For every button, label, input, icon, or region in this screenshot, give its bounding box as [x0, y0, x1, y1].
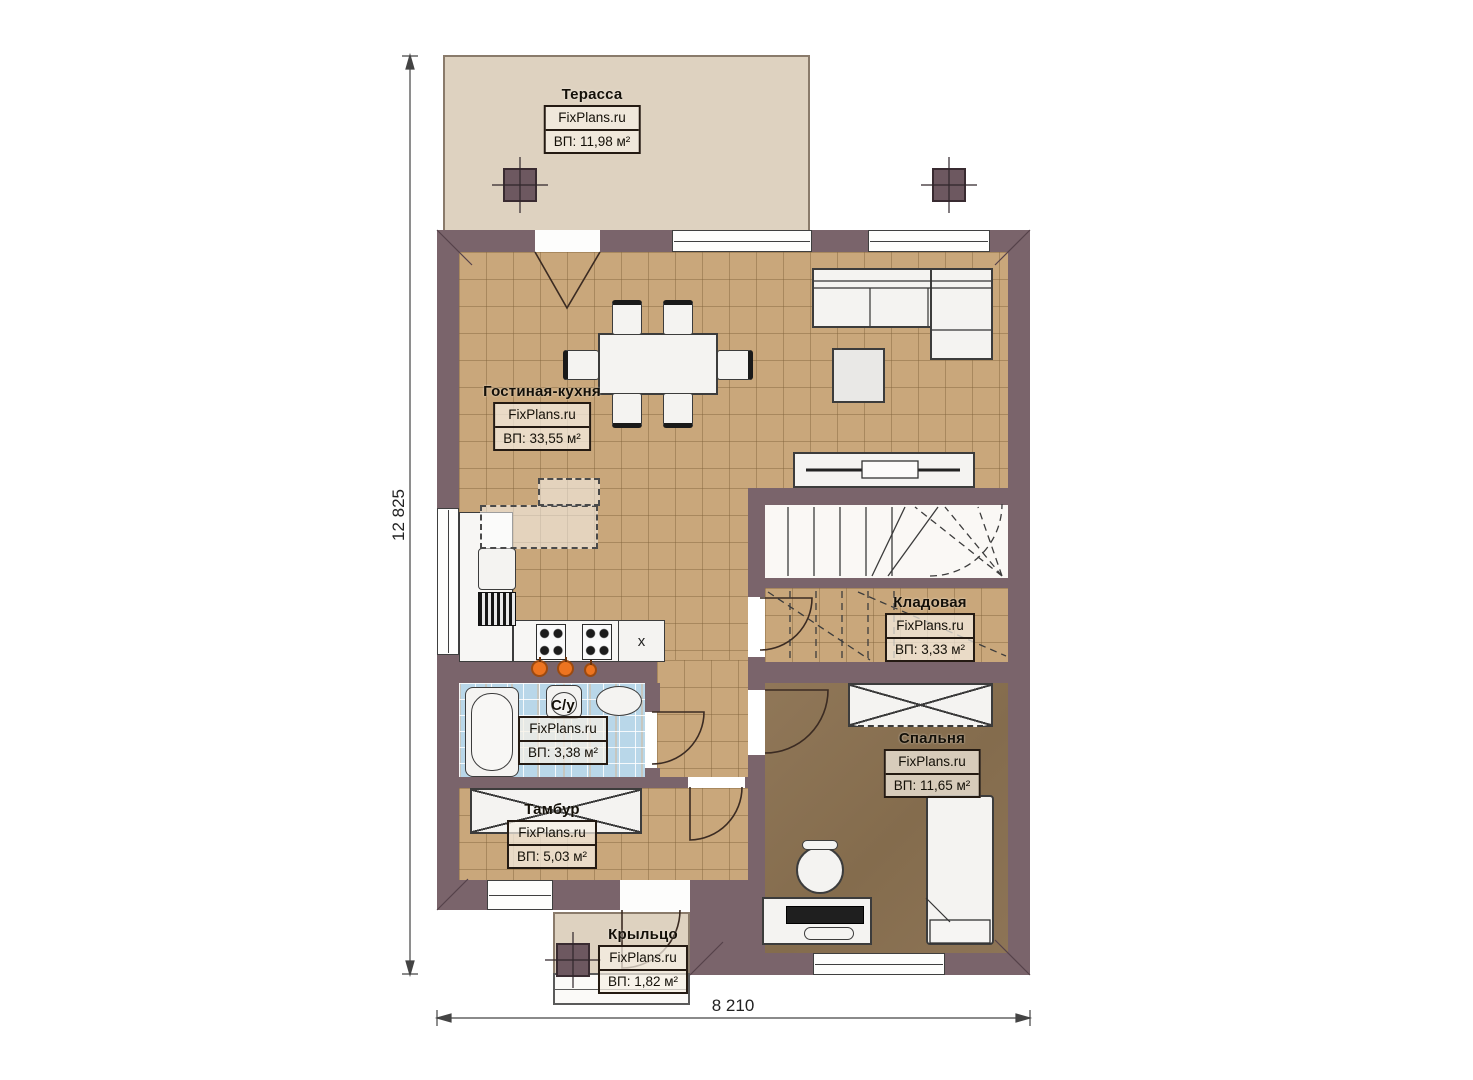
room-label-bedroom: Спальня FixPlans.ru ВП: 11,65 м² — [884, 730, 981, 798]
sink-drainer — [478, 592, 516, 626]
column-marker-icon — [503, 168, 537, 202]
watermark: FixPlans.ru — [509, 822, 595, 844]
stove-burners — [582, 624, 612, 660]
dimension-vertical: 12 825 — [389, 489, 409, 541]
dimension-horizontal: 8 210 — [712, 996, 755, 1016]
chair — [663, 300, 693, 335]
wall-segment — [645, 683, 660, 712]
upper-cabinet-dashed — [538, 478, 600, 506]
wall-segment — [690, 880, 765, 975]
window — [672, 230, 812, 252]
wall-segment — [748, 488, 765, 597]
floor-stairs — [765, 505, 1008, 578]
watermark: FixPlans.ru — [520, 718, 606, 740]
chair-stool — [796, 846, 844, 894]
room-area: ВП: 3,38 м² — [520, 740, 606, 764]
room-label-porch: Крыльцо FixPlans.ru ВП: 1,82 м² — [598, 926, 688, 994]
watermark: FixPlans.ru — [546, 107, 639, 129]
wall-segment — [1008, 252, 1030, 975]
watermark: FixPlans.ru — [495, 404, 589, 426]
watermark: FixPlans.ru — [887, 615, 973, 637]
room-name: С/у — [518, 697, 608, 714]
chair — [717, 350, 753, 380]
dining-table — [598, 333, 718, 395]
window — [437, 508, 459, 655]
room-name: Тамбур — [507, 801, 597, 818]
door-opening-terrace — [535, 230, 600, 252]
coffee-table — [832, 348, 885, 403]
column-marker-icon — [556, 943, 590, 977]
room-label-living-kitchen: Гостиная-кухня FixPlans.ru ВП: 33,55 м² — [483, 383, 601, 451]
wall-segment — [748, 662, 1030, 683]
wall-segment — [459, 777, 688, 788]
floor-hall — [657, 660, 748, 777]
wall-segment — [765, 578, 1008, 588]
column-marker-icon — [932, 168, 966, 202]
room-area: ВП: 11,98 м² — [546, 129, 639, 153]
room-name: Кладовая — [885, 594, 975, 611]
chair — [663, 393, 693, 428]
monitor — [786, 906, 864, 924]
wall-segment — [748, 788, 765, 880]
room-name: Гостиная-кухня — [483, 383, 601, 400]
window — [487, 880, 553, 910]
wall-segment — [748, 488, 1030, 505]
sofa-chaise — [930, 268, 993, 360]
room-area: ВП: 33,55 м² — [495, 426, 589, 450]
room-name: Терасса — [544, 86, 641, 103]
room-label-bathroom: С/у FixPlans.ru ВП: 3,38 м² — [518, 697, 608, 765]
room-name: Спальня — [884, 730, 981, 747]
room-name: Крыльцо — [598, 926, 688, 943]
wall-segment — [745, 777, 765, 788]
wardrobe — [848, 683, 993, 727]
bed — [926, 795, 994, 945]
upper-cabinet-dashed — [480, 505, 598, 549]
room-label-vestibule: Тамбур FixPlans.ru ВП: 5,03 м² — [507, 801, 597, 869]
plumbing-fixture-icon — [557, 660, 574, 677]
door-opening-entrance — [620, 880, 690, 910]
chair — [612, 393, 642, 428]
room-area: ВП: 1,82 м² — [600, 969, 686, 993]
window — [868, 230, 990, 252]
watermark: FixPlans.ru — [886, 751, 979, 773]
tv-stand — [793, 452, 975, 488]
room-label-storage: Кладовая FixPlans.ru ВП: 3,33 м² — [885, 594, 975, 662]
plumbing-fixture-icon — [584, 663, 597, 677]
watermark: FixPlans.ru — [600, 947, 686, 969]
room-area: ВП: 5,03 м² — [509, 844, 595, 868]
chair — [563, 350, 599, 380]
room-area: ВП: 3,33 м² — [887, 637, 973, 661]
window — [813, 953, 945, 975]
fridge-mark: x — [638, 633, 646, 650]
stove-burners — [536, 624, 566, 660]
bathtub-basin — [471, 693, 513, 771]
keyboard — [804, 927, 854, 940]
room-area: ВП: 11,65 м² — [886, 773, 979, 797]
kitchen-sink — [478, 548, 516, 590]
room-label-terrace: Терасса FixPlans.ru ВП: 11,98 м² — [544, 86, 641, 154]
fridge-cabinet: x — [618, 620, 665, 662]
stool-back — [802, 840, 838, 850]
chair — [612, 300, 642, 335]
plumbing-fixture-icon — [531, 660, 548, 677]
floor-plan: x — [0, 0, 1473, 1080]
wall-segment — [748, 657, 765, 690]
